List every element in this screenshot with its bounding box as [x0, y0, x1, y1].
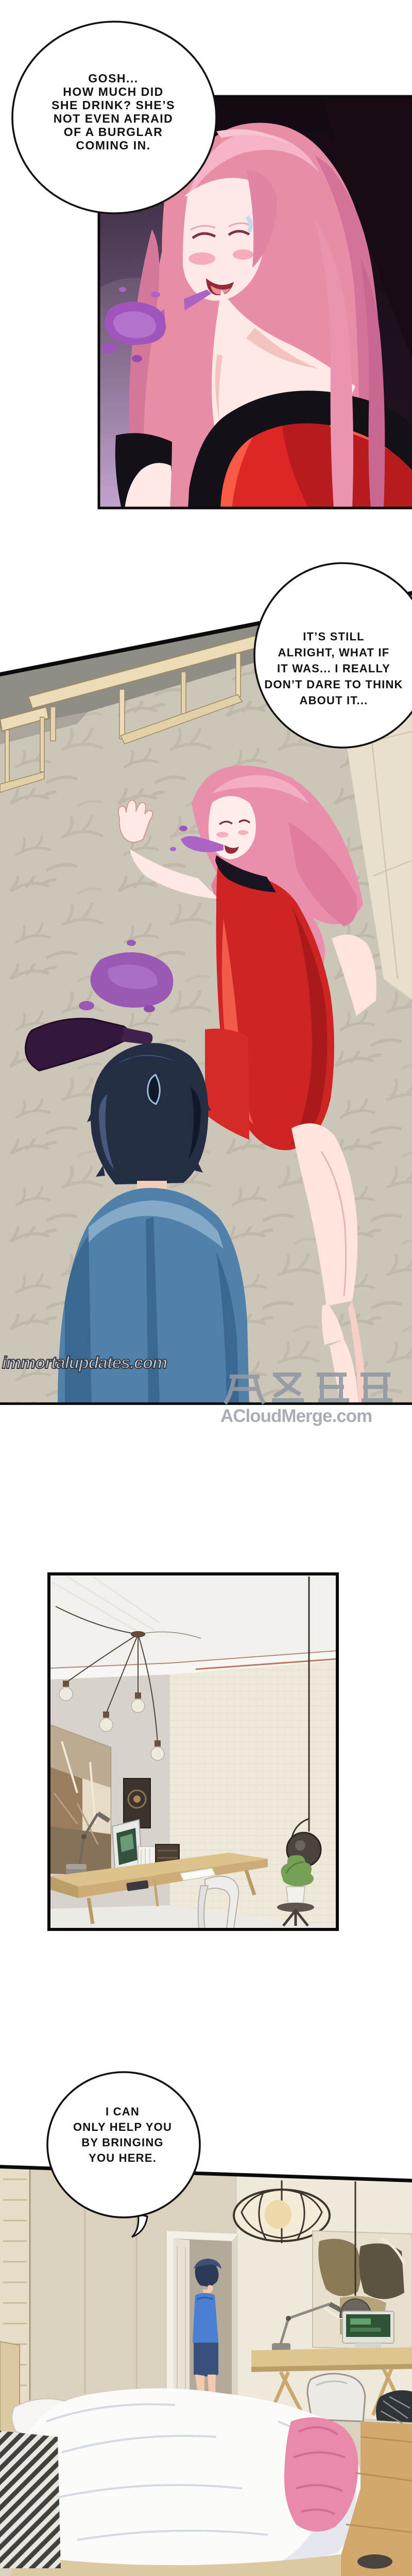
svg-text:IT’S STILL: IT’S STILL [303, 630, 365, 643]
svg-text:ACloudMerge.com: ACloudMerge.com [220, 1406, 372, 1426]
svg-text:DON’T DARE TO THINK: DON’T DARE TO THINK [264, 678, 403, 691]
svg-text:OF A BURGLAR: OF A BURGLAR [64, 125, 163, 139]
svg-text:immortalupdates.com: immortalupdates.com [2, 1353, 167, 1372]
svg-text:IT WAS... I REALLY: IT WAS... I REALLY [277, 662, 390, 675]
svg-text:HOW MUCH DID: HOW MUCH DID [63, 85, 164, 98]
svg-text:ALRIGHT, WHAT IF: ALRIGHT, WHAT IF [278, 646, 390, 659]
svg-text:I CAN: I CAN [106, 2105, 140, 2118]
svg-text:COMING IN.: COMING IN. [76, 139, 150, 152]
svg-text:BY BRINGING: BY BRINGING [81, 2136, 163, 2149]
svg-text:ONLY HELP YOU: ONLY HELP YOU [73, 2121, 172, 2133]
svg-text:SHE DRINK? SHE’S: SHE DRINK? SHE’S [51, 98, 175, 112]
svg-text:YOU HERE.: YOU HERE. [89, 2151, 157, 2164]
svg-text:ABOUT IT...: ABOUT IT... [300, 694, 368, 707]
svg-text:NOT EVEN AFRAID: NOT EVEN AFRAID [54, 112, 174, 125]
svg-text:GOSH...: GOSH... [88, 72, 138, 85]
